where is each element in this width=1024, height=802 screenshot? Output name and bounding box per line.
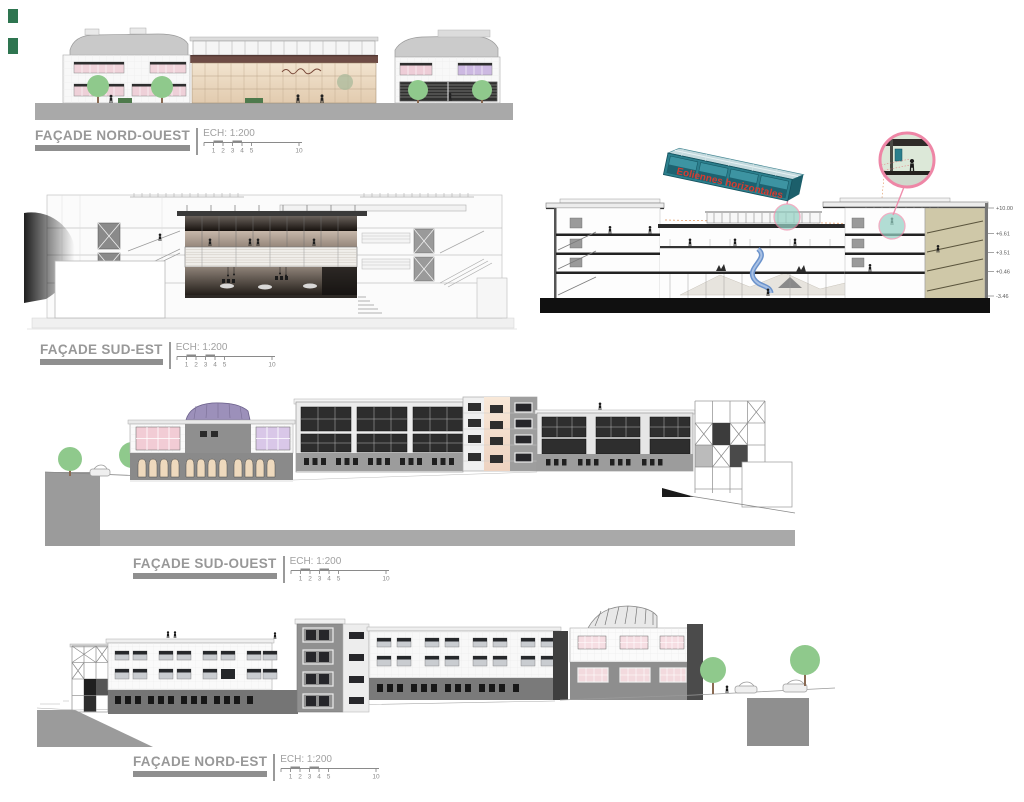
right-building (570, 606, 703, 700)
scale-tick: 10 (382, 576, 390, 583)
level-label: -3.46 (996, 294, 1009, 300)
right-wing (395, 57, 500, 103)
label-divider (283, 556, 285, 583)
title-underline (35, 145, 190, 151)
window (578, 668, 686, 682)
scale-tick: 1 (184, 362, 188, 369)
tree (700, 657, 726, 694)
scale-tick: 1 (289, 774, 293, 781)
main-block (106, 631, 298, 714)
scale-tick: 4 (327, 576, 331, 583)
right-center-block (367, 627, 568, 700)
window (578, 636, 684, 649)
facade-label-nord-est: FAÇADE NORD-EST ECH: 1:200 1 2 3 4 5 10 (133, 754, 380, 781)
left-wing (63, 55, 190, 103)
scale-tick: 2 (298, 774, 302, 781)
tree (58, 447, 82, 476)
detail-circle (879, 133, 935, 189)
facade-title: FAÇADE NORD-OUEST (35, 128, 190, 143)
facade-title: FAÇADE SUD-OUEST (133, 556, 277, 571)
scale-tick: 5 (327, 774, 331, 781)
title-underline (133, 573, 277, 579)
scale-tick: 2 (308, 576, 312, 583)
scale-text: ECH: 1:200 (280, 754, 380, 765)
car (90, 465, 110, 476)
facade-nord-ouest-drawing (30, 20, 515, 130)
facade-label-sud-ouest: FAÇADE SUD-OUEST ECH: 1:200 1 2 3 4 5 10 (133, 556, 390, 583)
scale-bar: 1 2 3 4 5 10 (203, 140, 303, 155)
scale-tick: 4 (240, 148, 244, 155)
scale-tick: 10 (373, 774, 381, 781)
drawing-sheet: +10.00 +6.61 +3.51 +0.46 -3.46 E (0, 0, 1024, 802)
scale-tick: 5 (250, 148, 254, 155)
scale-tick: 10 (295, 148, 303, 155)
scale-bar: 1 2 3 4 5 10 (176, 354, 276, 369)
scale-bar: 1 2 3 4 5 10 (290, 568, 390, 583)
scale-tick: 5 (222, 362, 226, 369)
level-label: +0.46 (996, 270, 1010, 276)
skylight-band (705, 211, 822, 223)
highlight-circle (879, 213, 905, 239)
left-block (554, 208, 660, 299)
scale-tick: 1 (212, 148, 216, 155)
scale-tick: 3 (308, 774, 312, 781)
facade-sud-est-drawing (22, 183, 522, 333)
scale-tick: 3 (203, 362, 207, 369)
center-tower (295, 619, 369, 712)
left-building (128, 403, 295, 481)
scale-tick: 2 (221, 148, 225, 155)
roof-left (70, 28, 188, 57)
base-strip (100, 530, 795, 546)
section-drawing: +10.00 +6.61 +3.51 +0.46 -3.46 E (540, 125, 1024, 317)
level-label: +10.00 (996, 206, 1013, 212)
highlight-circle (774, 204, 800, 230)
scale-text: ECH: 1:200 (203, 128, 303, 139)
title-underline (133, 771, 267, 777)
retaining-block (747, 698, 809, 746)
scale-tick: 10 (268, 362, 276, 369)
curtain-wall-block-2 (535, 403, 695, 472)
title-underline (40, 359, 163, 365)
corner-mark (8, 9, 18, 23)
bush (118, 98, 132, 103)
roof-right (395, 30, 498, 57)
scale-tick: 2 (194, 362, 198, 369)
central-block (177, 205, 367, 298)
facade-title: FAÇADE SUD-EST (40, 342, 163, 357)
scale-text: ECH: 1:200 (290, 556, 390, 567)
scale-tick: 5 (336, 576, 340, 583)
curtain-wall-block-1 (294, 399, 465, 472)
section-building (540, 198, 994, 313)
terrain (27, 318, 517, 329)
scale-tick: 3 (231, 148, 235, 155)
corner-mark (8, 38, 18, 54)
scale-tick: 3 (317, 576, 321, 583)
level-label: +3.51 (996, 251, 1010, 257)
lower-white-block (55, 261, 165, 318)
bush (245, 98, 263, 103)
scale-text: ECH: 1:200 (176, 342, 276, 353)
label-divider (273, 754, 275, 781)
scale-tick: 4 (317, 774, 321, 781)
ground-strip (35, 103, 513, 120)
facade-title: FAÇADE NORD-EST (133, 754, 267, 769)
facade-sud-ouest-drawing (40, 393, 840, 555)
entrance-hall (190, 55, 378, 103)
facade-nord-est-drawing (35, 598, 835, 750)
right-block (845, 203, 988, 299)
mid-tower (463, 397, 537, 471)
interior-tree (337, 74, 353, 90)
scale-tick: 1 (298, 576, 302, 583)
car (735, 682, 757, 693)
scale-tick: 4 (213, 362, 217, 369)
clerestory-band (190, 37, 378, 55)
scale-bar: 1 2 3 4 5 10 (280, 766, 380, 781)
car (783, 680, 807, 692)
facade-label-nord-ouest: FAÇADE NORD-OUEST ECH: 1:200 1 2 3 4 5 1… (35, 128, 303, 155)
level-labels: +10.00 +6.61 +3.51 +0.46 -3.46 (996, 206, 1013, 300)
facade-label-sud-est: FAÇADE SUD-EST ECH: 1:200 1 2 3 4 5 10 (40, 342, 276, 369)
label-divider (169, 342, 171, 369)
label-divider (196, 128, 198, 155)
ground-bar (540, 298, 990, 313)
level-label: +6.61 (996, 232, 1010, 238)
level-marks (988, 208, 994, 296)
steel-tower (70, 644, 110, 712)
